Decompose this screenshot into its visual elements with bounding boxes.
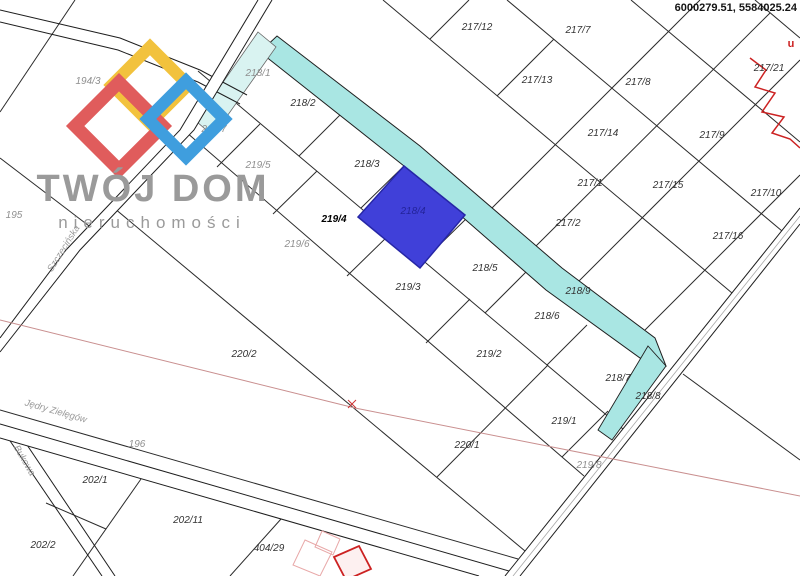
parcel-label-217-16: 217/16 bbox=[712, 231, 744, 242]
parcel-label-217-21: 217/21 bbox=[753, 63, 785, 74]
parcel-label-217-1: 217/1 bbox=[576, 178, 602, 189]
parcel-label-219-1: 219/1 bbox=[550, 416, 576, 427]
parcel-label-217-8: 217/8 bbox=[624, 77, 650, 88]
parcel-label-217-14: 217/14 bbox=[587, 128, 619, 139]
parcel-label-219-6: 219/6 bbox=[283, 239, 309, 250]
red-annotation-text: u bbox=[788, 38, 795, 50]
street-label-1: Bukowa bbox=[11, 443, 37, 478]
parcel-label-202-11: 202/11 bbox=[172, 515, 203, 526]
parcel-label-219-8: 219/8 bbox=[575, 460, 601, 471]
parcel-label-218-3: 218/3 bbox=[353, 159, 379, 170]
parcel-label-219-4: 219/4 bbox=[320, 214, 346, 225]
parcel-label-217-7: 217/7 bbox=[564, 25, 590, 36]
parcel-label-218-2: 218/2 bbox=[289, 98, 315, 109]
parcel-label-202-1: 202/1 bbox=[81, 475, 107, 486]
parcel-label-218-5: 218/5 bbox=[471, 263, 497, 274]
parcel-label-219-3: 219/3 bbox=[394, 282, 420, 293]
ditch-parcel-218-9 bbox=[260, 36, 666, 366]
parcel-label-218-1: 218/1 bbox=[244, 68, 270, 79]
parcel-label-217-9: 217/9 bbox=[698, 130, 724, 141]
parcel-label-217-2: 217/2 bbox=[554, 218, 580, 229]
parcel-label-217-10: 217/10 bbox=[750, 188, 782, 199]
cadastral-map: u 194/3195196218/1219/7219/5219/6218/221… bbox=[0, 0, 800, 576]
parcel-label-219-2: 219/2 bbox=[475, 349, 501, 360]
parcel-label-218-7: 218/7 bbox=[604, 373, 630, 384]
street-label-2: Jędry Zielęgów bbox=[23, 397, 90, 426]
parcel-label-217-15: 217/15 bbox=[652, 180, 684, 191]
red-details: u bbox=[0, 38, 800, 576]
parcel-label-404-29: 404/29 bbox=[254, 543, 285, 554]
parcel-label-218-9: 218/9 bbox=[564, 286, 590, 297]
parcel-label-218-4: 218/4 bbox=[399, 206, 425, 217]
parcel-label-220-2: 220/2 bbox=[230, 349, 256, 360]
parcel-label-220-1: 220/1 bbox=[453, 440, 479, 451]
parcel-label-194-3: 194/3 bbox=[75, 76, 100, 87]
parcel-label-218-8: 218/8 bbox=[634, 391, 660, 402]
logo-subtitle: nieruchomości bbox=[58, 213, 246, 232]
building-outline-red bbox=[334, 546, 371, 576]
logo-title: TWÓJ DOM bbox=[37, 166, 270, 210]
parcel-label-218-6: 218/6 bbox=[533, 311, 559, 322]
cadastral-map-screenshot: u 194/3195196218/1219/7219/5219/6218/221… bbox=[0, 0, 800, 576]
parcel-label-217-13: 217/13 bbox=[521, 75, 553, 86]
parcel-label-217-12: 217/12 bbox=[461, 22, 493, 33]
building-outline-pink bbox=[293, 540, 332, 576]
parcel-label-195: 195 bbox=[6, 210, 23, 221]
parcel-label-202-2: 202/2 bbox=[29, 540, 55, 551]
coordinate-readout: 6000279.51, 5584025.24 bbox=[675, 2, 798, 14]
road-196-edge2 bbox=[0, 438, 479, 576]
parcel-label-196: 196 bbox=[129, 439, 146, 450]
